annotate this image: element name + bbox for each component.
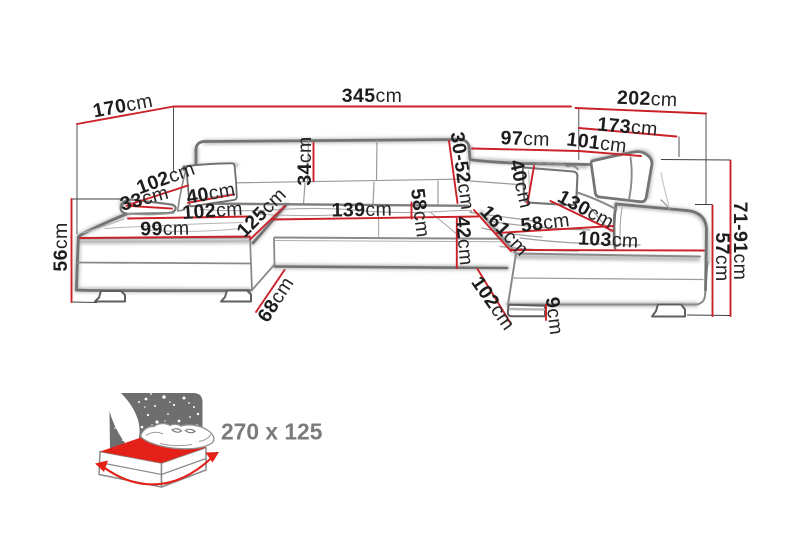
svg-text:97cm: 97cm (500, 127, 550, 151)
svg-text:170cm: 170cm (91, 90, 155, 123)
svg-text:270 x 125: 270 x 125 (221, 419, 323, 445)
svg-text:139cm: 139cm (331, 198, 392, 221)
svg-text:345cm: 345cm (342, 85, 403, 107)
svg-text:30-52cm: 30-52cm (446, 131, 479, 212)
svg-text:34cm: 34cm (294, 136, 316, 185)
svg-text:202cm: 202cm (617, 87, 678, 112)
svg-text:9cm: 9cm (541, 296, 567, 336)
svg-text:102cm: 102cm (182, 198, 244, 224)
svg-text:42cm: 42cm (451, 215, 477, 266)
svg-text:103cm: 103cm (578, 227, 640, 252)
svg-text:56cm: 56cm (50, 222, 72, 271)
svg-text:58cm: 58cm (519, 209, 571, 237)
svg-text:58cm: 58cm (406, 187, 434, 239)
svg-text:71-91cm: 71-91cm (729, 202, 751, 281)
svg-text:99cm: 99cm (140, 218, 190, 241)
